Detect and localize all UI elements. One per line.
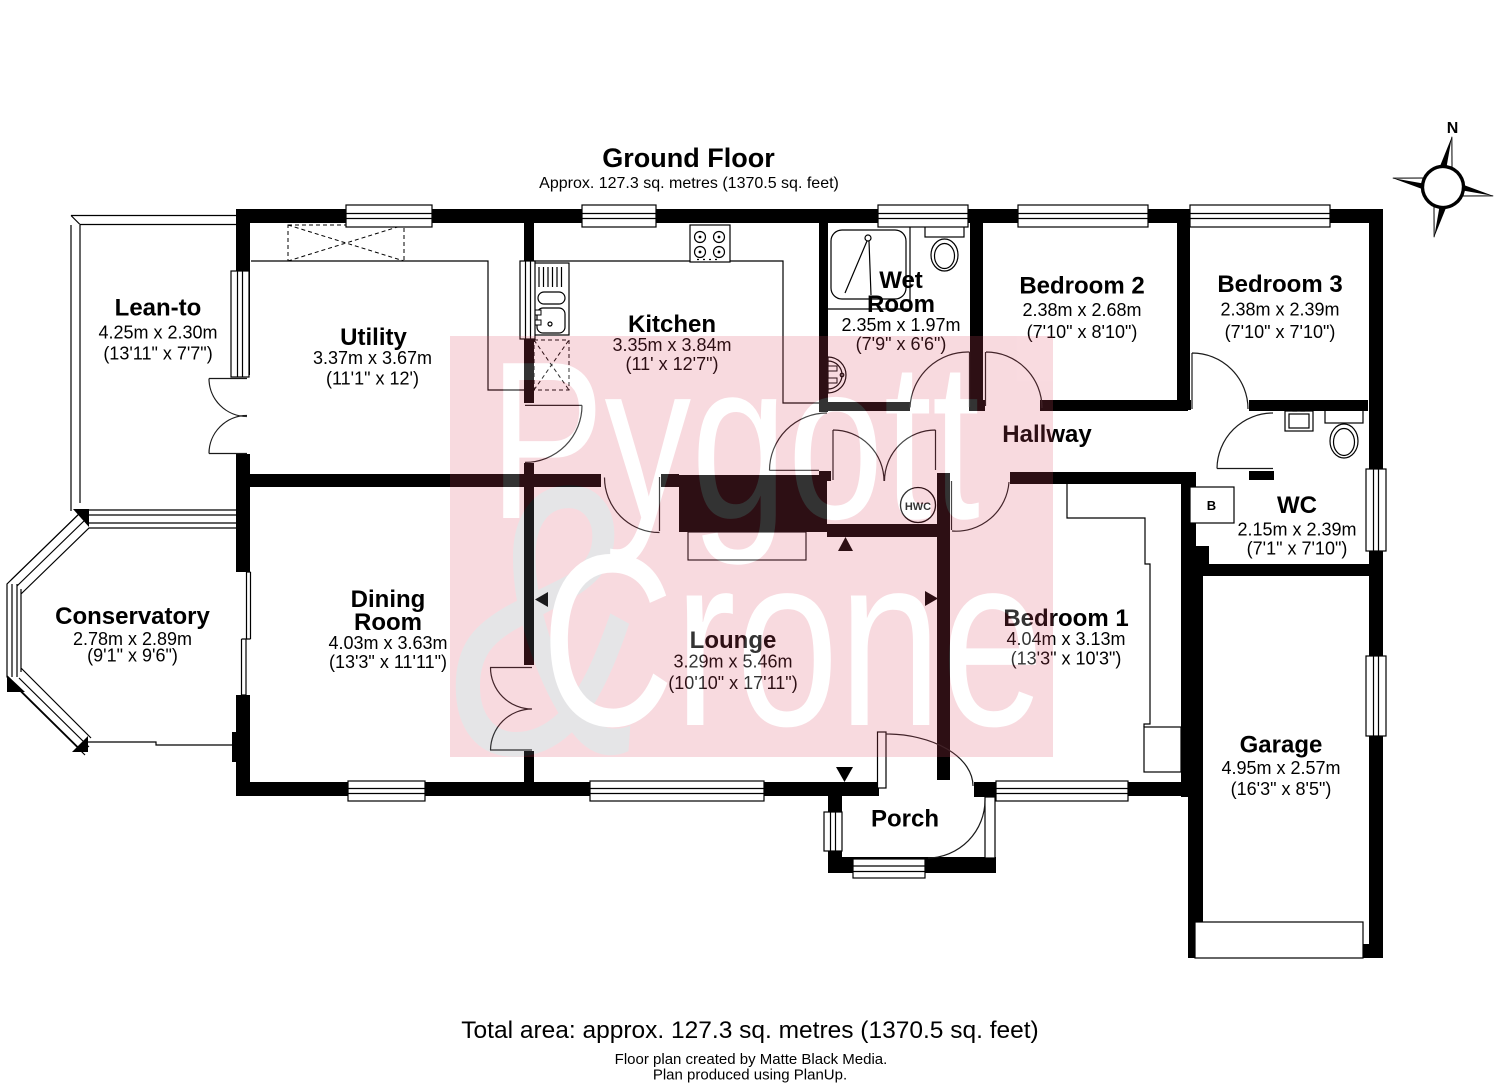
svg-text:Approx. 127.3 sq. metres (1370: Approx. 127.3 sq. metres (1370.5 sq. fee… — [539, 175, 839, 192]
svg-text:B: B — [1207, 498, 1216, 513]
svg-text:Total area: approx. 127.3 sq.: Total area: approx. 127.3 sq. metres (13… — [461, 1017, 1038, 1044]
svg-text:Crone: Crone — [541, 503, 1044, 777]
svg-text:4.25m x 2.30m: 4.25m x 2.30m — [98, 323, 217, 343]
svg-text:Plan produced using PlanUp.: Plan produced using PlanUp. — [653, 1067, 847, 1084]
svg-text:Garage: Garage — [1240, 732, 1323, 759]
svg-text:4.95m x 2.57m: 4.95m x 2.57m — [1221, 758, 1340, 778]
svg-text:(7'10" x 7'10"): (7'10" x 7'10") — [1225, 322, 1336, 342]
svg-text:N: N — [1447, 120, 1459, 137]
svg-text:Floor plan created by Matte Bl: Floor plan created by Matte Black Media. — [615, 1051, 888, 1068]
svg-text:(11'1" x 12'): (11'1" x 12') — [326, 369, 419, 389]
svg-text:Bedroom 2: Bedroom 2 — [1019, 273, 1144, 300]
svg-text:2.15m x 2.39m: 2.15m x 2.39m — [1237, 520, 1356, 540]
svg-text:Conservatory: Conservatory — [55, 603, 210, 630]
svg-text:Wet: Wet — [879, 267, 923, 294]
svg-text:4.03m x 3.63m: 4.03m x 3.63m — [328, 633, 447, 653]
svg-text:(7'1" x 7'10"): (7'1" x 7'10") — [1247, 539, 1348, 559]
svg-text:(16'3" x 8'5"): (16'3" x 8'5") — [1231, 779, 1332, 799]
svg-text:Bedroom 3: Bedroom 3 — [1217, 271, 1342, 298]
svg-text:(13'11" x 7'7"): (13'11" x 7'7") — [103, 344, 212, 364]
svg-text:2.38m x 2.68m: 2.38m x 2.68m — [1022, 300, 1141, 320]
svg-text:Lean-to: Lean-to — [115, 295, 202, 322]
svg-text:WC: WC — [1277, 492, 1317, 519]
svg-text:Ground Floor: Ground Floor — [602, 143, 775, 173]
svg-text:Utility: Utility — [340, 324, 407, 351]
svg-text:3.37m x 3.67m: 3.37m x 3.67m — [313, 348, 432, 368]
svg-text:2.38m x 2.39m: 2.38m x 2.39m — [1220, 300, 1339, 320]
svg-text:Porch: Porch — [871, 806, 939, 833]
svg-text:(13'3" x 11'11"): (13'3" x 11'11") — [329, 652, 447, 672]
svg-text:(9'1" x 9'6"): (9'1" x 9'6") — [87, 646, 178, 666]
svg-text:Room: Room — [354, 609, 422, 636]
